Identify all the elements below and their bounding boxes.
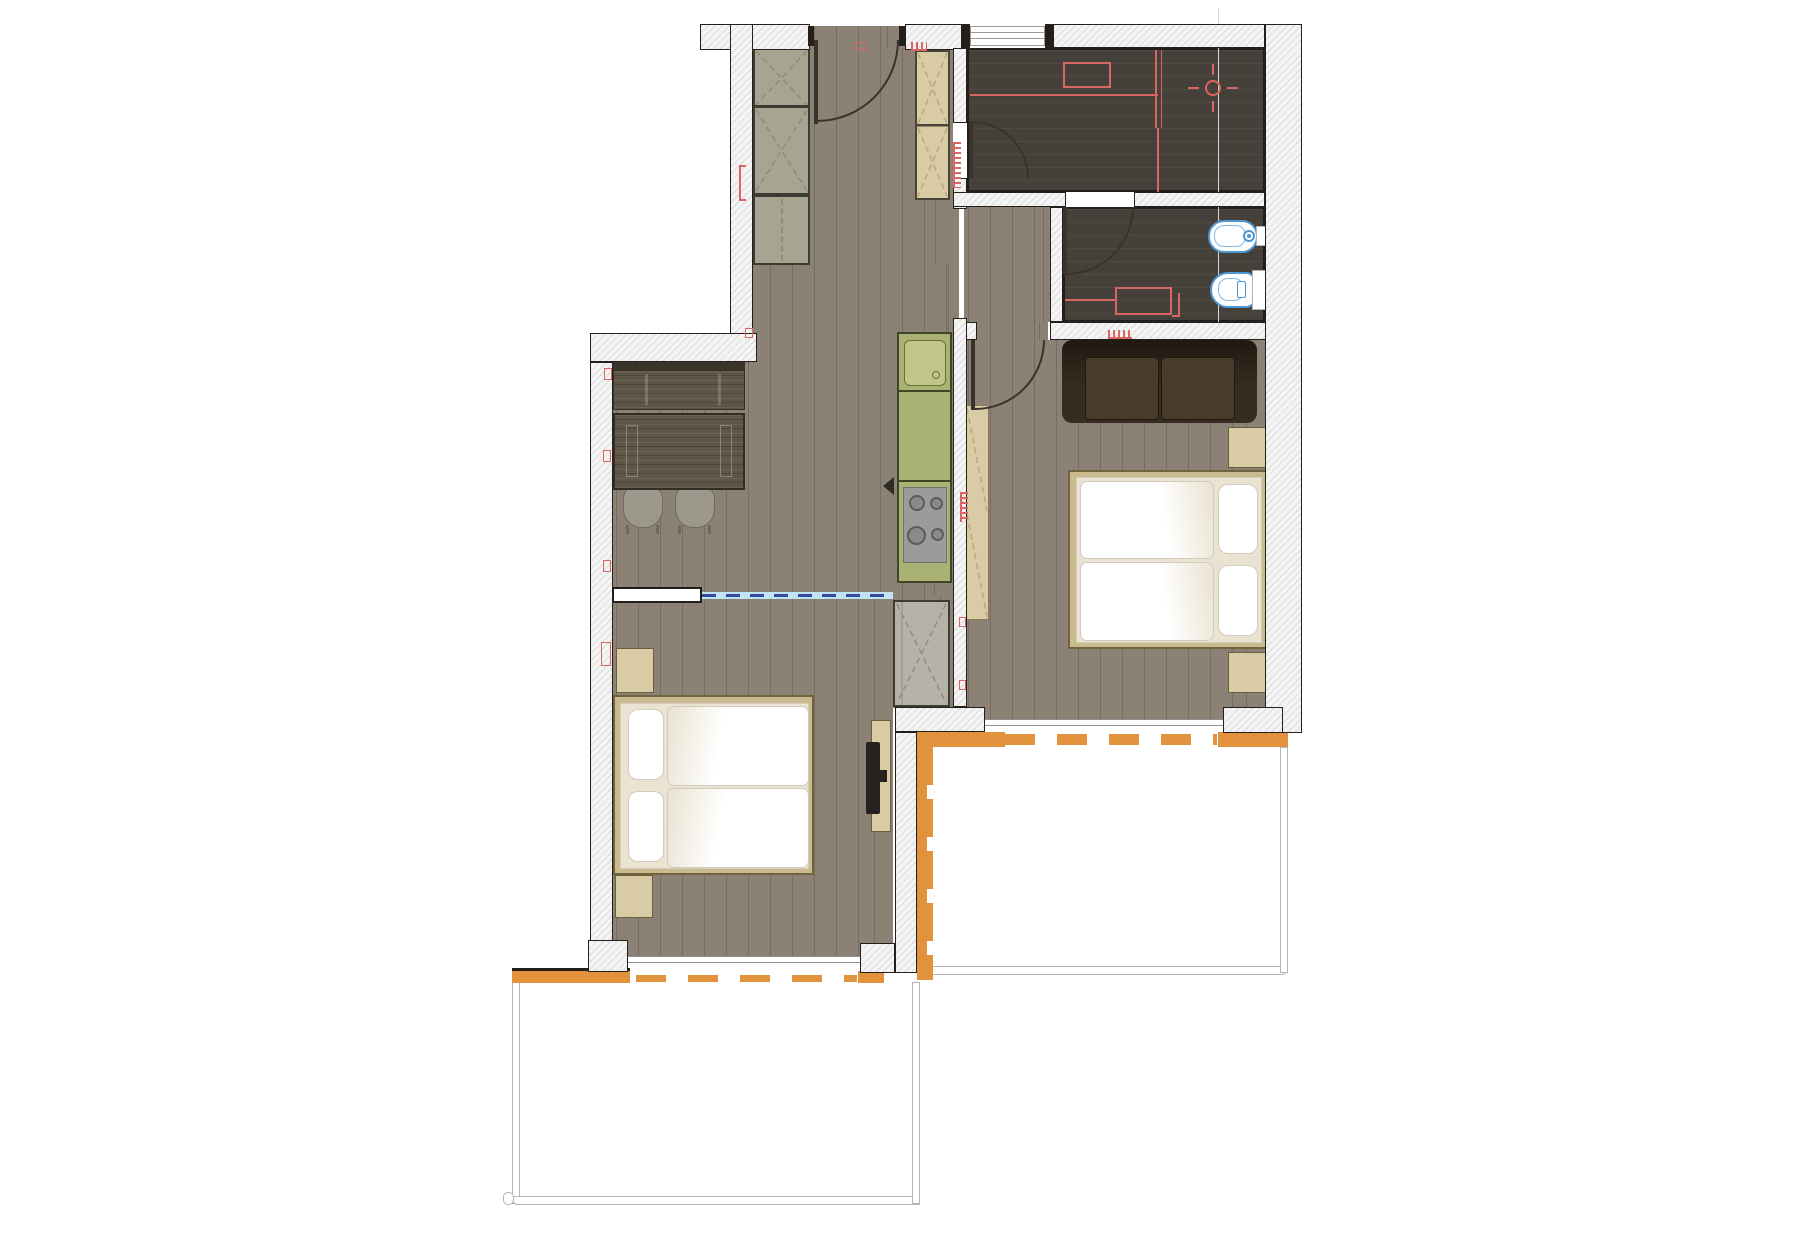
wardrobe-bracket (739, 165, 741, 201)
tv (866, 742, 880, 814)
balcony-right-rail-bottom (930, 966, 1287, 975)
bed-left-pillow-top (628, 709, 664, 780)
open-threshold-line (959, 207, 964, 318)
toilet (1210, 272, 1256, 308)
kitchen-sink (904, 340, 946, 386)
wall-hall-right-upper (953, 48, 967, 123)
bench-slat-2 (718, 374, 721, 405)
wall-dining-top (590, 333, 757, 362)
threshold-bed1-solid-left (512, 971, 630, 983)
burner-2 (930, 497, 943, 510)
bidet-tap-dot (1247, 234, 1251, 238)
wall-band-shower-b (1134, 192, 1265, 207)
heating-comb-cabinet (953, 142, 961, 188)
wall-living-bottom (895, 707, 985, 732)
angled-wardrobe (965, 405, 989, 620)
entry-frame-stop-right (899, 26, 905, 46)
balcony-left-rail-left (512, 982, 520, 1204)
burner-1 (909, 495, 925, 511)
wall-bed1-front-stub-right (860, 943, 895, 973)
bed-right-duvet-top (1080, 481, 1214, 559)
kitchen-hob (903, 487, 947, 563)
socket-bed1-wall-1 (603, 560, 611, 572)
partition-panel (612, 587, 702, 603)
chair-leg-4 (708, 525, 711, 534)
sofa (1062, 340, 1257, 423)
balcony-left-rail-right (912, 982, 920, 1204)
angled-wardrobe-pattern (966, 406, 988, 619)
red-radiator-wc (1115, 287, 1172, 315)
red-rect-shower (1063, 62, 1111, 88)
wall-band-shower-a (953, 192, 1066, 207)
ceiling-lamp-symbol (1205, 80, 1221, 96)
floor-doorway-patch (977, 322, 1048, 340)
window (970, 26, 1045, 46)
glass-front-bedroom-left (628, 956, 860, 963)
tv-mount (880, 770, 887, 782)
chair-leg-1 (626, 525, 629, 534)
sink-drain (932, 371, 940, 379)
toilet-flush (1237, 281, 1246, 298)
wall-top-b (1053, 24, 1265, 48)
lamp-tick-n (1212, 64, 1214, 75)
threshold-balc2-top-solid-right (1218, 732, 1288, 747)
socket-corner-wall (745, 328, 753, 338)
socket-bed2-wall-1 (959, 617, 966, 627)
kitchen-divider-2 (899, 480, 950, 482)
socket-entry (856, 42, 866, 50)
wall-outer-right (1265, 24, 1302, 733)
lamp-tick-s (1212, 101, 1214, 112)
placemat-left (626, 425, 638, 477)
bench-slat-1 (645, 374, 648, 405)
red-radiator-bracket-h (1172, 315, 1180, 317)
wardrobe-bracket-t1 (739, 165, 746, 167)
hall-low-cabinet (753, 195, 810, 265)
wall-hall-left (730, 24, 753, 345)
bidet-basin (1214, 225, 1246, 247)
nightstand-right-top (1228, 427, 1266, 468)
red-radiator-line (1065, 299, 1115, 301)
threshold-balc2-top-solid-left (933, 732, 1005, 747)
wall-band-wc-bottom (1050, 322, 1266, 340)
tall-cabinet-x-pattern (917, 52, 948, 198)
floor-corridor (953, 207, 1050, 322)
red-vline-a (1155, 50, 1157, 128)
balcony-left-rail-bottom (512, 1196, 920, 1205)
heating-comb-topwall (911, 42, 927, 51)
chair-leg-2 (656, 525, 659, 534)
bed-left-pillow-bottom (628, 791, 664, 862)
red-vline-c (1157, 128, 1159, 192)
entry-frame-stop-left (808, 26, 814, 46)
wardrobe-bracket-t2 (739, 199, 746, 201)
dining-chair-left (623, 486, 663, 528)
kitchen-counter (897, 332, 952, 583)
hall-cabinet-divider (781, 199, 783, 261)
bed-left-frame (613, 695, 814, 875)
nightstand-right-bottom (1228, 652, 1267, 693)
bed-left-duvet-top (667, 706, 809, 786)
entry-wardrobe (753, 48, 810, 195)
bidet (1208, 220, 1258, 253)
storage-cabinet-x-pattern (895, 602, 948, 705)
kitchen-divider-1 (899, 390, 950, 392)
balcony-right-rail-right (1280, 747, 1288, 973)
heating-comb-kitchen (960, 492, 968, 522)
tall-cabinet (915, 50, 950, 200)
socket-bed1-wall-2 (601, 642, 611, 666)
red-hline-shower (970, 94, 1158, 96)
window-jamb-left (962, 24, 970, 48)
bed-right-pillow-bottom (1218, 565, 1258, 636)
threshold-balc2-top-dashed (1005, 734, 1217, 745)
socket-dining-2 (603, 450, 611, 462)
lamp-tick-w (1188, 87, 1199, 89)
heating-comb-wc (1108, 330, 1132, 339)
window-glazing-2 (971, 38, 1044, 39)
sofa-cushion-right (1161, 357, 1235, 420)
balcony-left-corner-cap (503, 1192, 514, 1205)
bed-right-duvet-bottom (1080, 562, 1214, 641)
dining-table (613, 413, 745, 490)
window-glazing-1 (971, 32, 1044, 33)
burner-3 (907, 526, 926, 545)
nightstand-left-top (616, 648, 654, 693)
partition-dashes (702, 594, 893, 597)
bed-right-frame (1068, 470, 1268, 649)
threshold-bed1-dashed (636, 975, 857, 982)
bed-right-pillow-top (1218, 484, 1258, 554)
dining-chair-right (675, 486, 715, 528)
wall-bed1-front-stub-left (588, 940, 628, 972)
storage-cabinet (893, 600, 950, 707)
socket-bed2-wall-2 (959, 680, 966, 690)
nightstand-left-bottom (615, 875, 653, 918)
dining-bench (613, 370, 745, 410)
placemat-right (720, 425, 732, 477)
floor-plan: Apartment floor plan — two bedrooms, sho… (0, 0, 1800, 1246)
wall-wc-left (1050, 207, 1063, 322)
chair-leg-3 (678, 525, 681, 534)
window-jamb-right (1045, 24, 1053, 48)
threshold-balc2-left-dashes (927, 747, 933, 980)
glass-front-bedroom-right (985, 719, 1223, 726)
wall-bedroom-left-east (895, 732, 917, 973)
red-radiator-bracket-v (1178, 293, 1180, 317)
wardrobe-x-pattern (755, 50, 808, 193)
socket-dining-1 (604, 368, 612, 380)
dining-bench-back (613, 362, 745, 370)
wall-bed2-corner (1223, 707, 1283, 733)
burner-4 (931, 528, 944, 541)
sofa-cushion-left (1085, 357, 1159, 420)
red-vline-b (1161, 50, 1162, 128)
bed-left-duvet-bottom (667, 788, 809, 868)
lamp-tick-e (1227, 87, 1238, 89)
wall-top-left (700, 24, 810, 50)
